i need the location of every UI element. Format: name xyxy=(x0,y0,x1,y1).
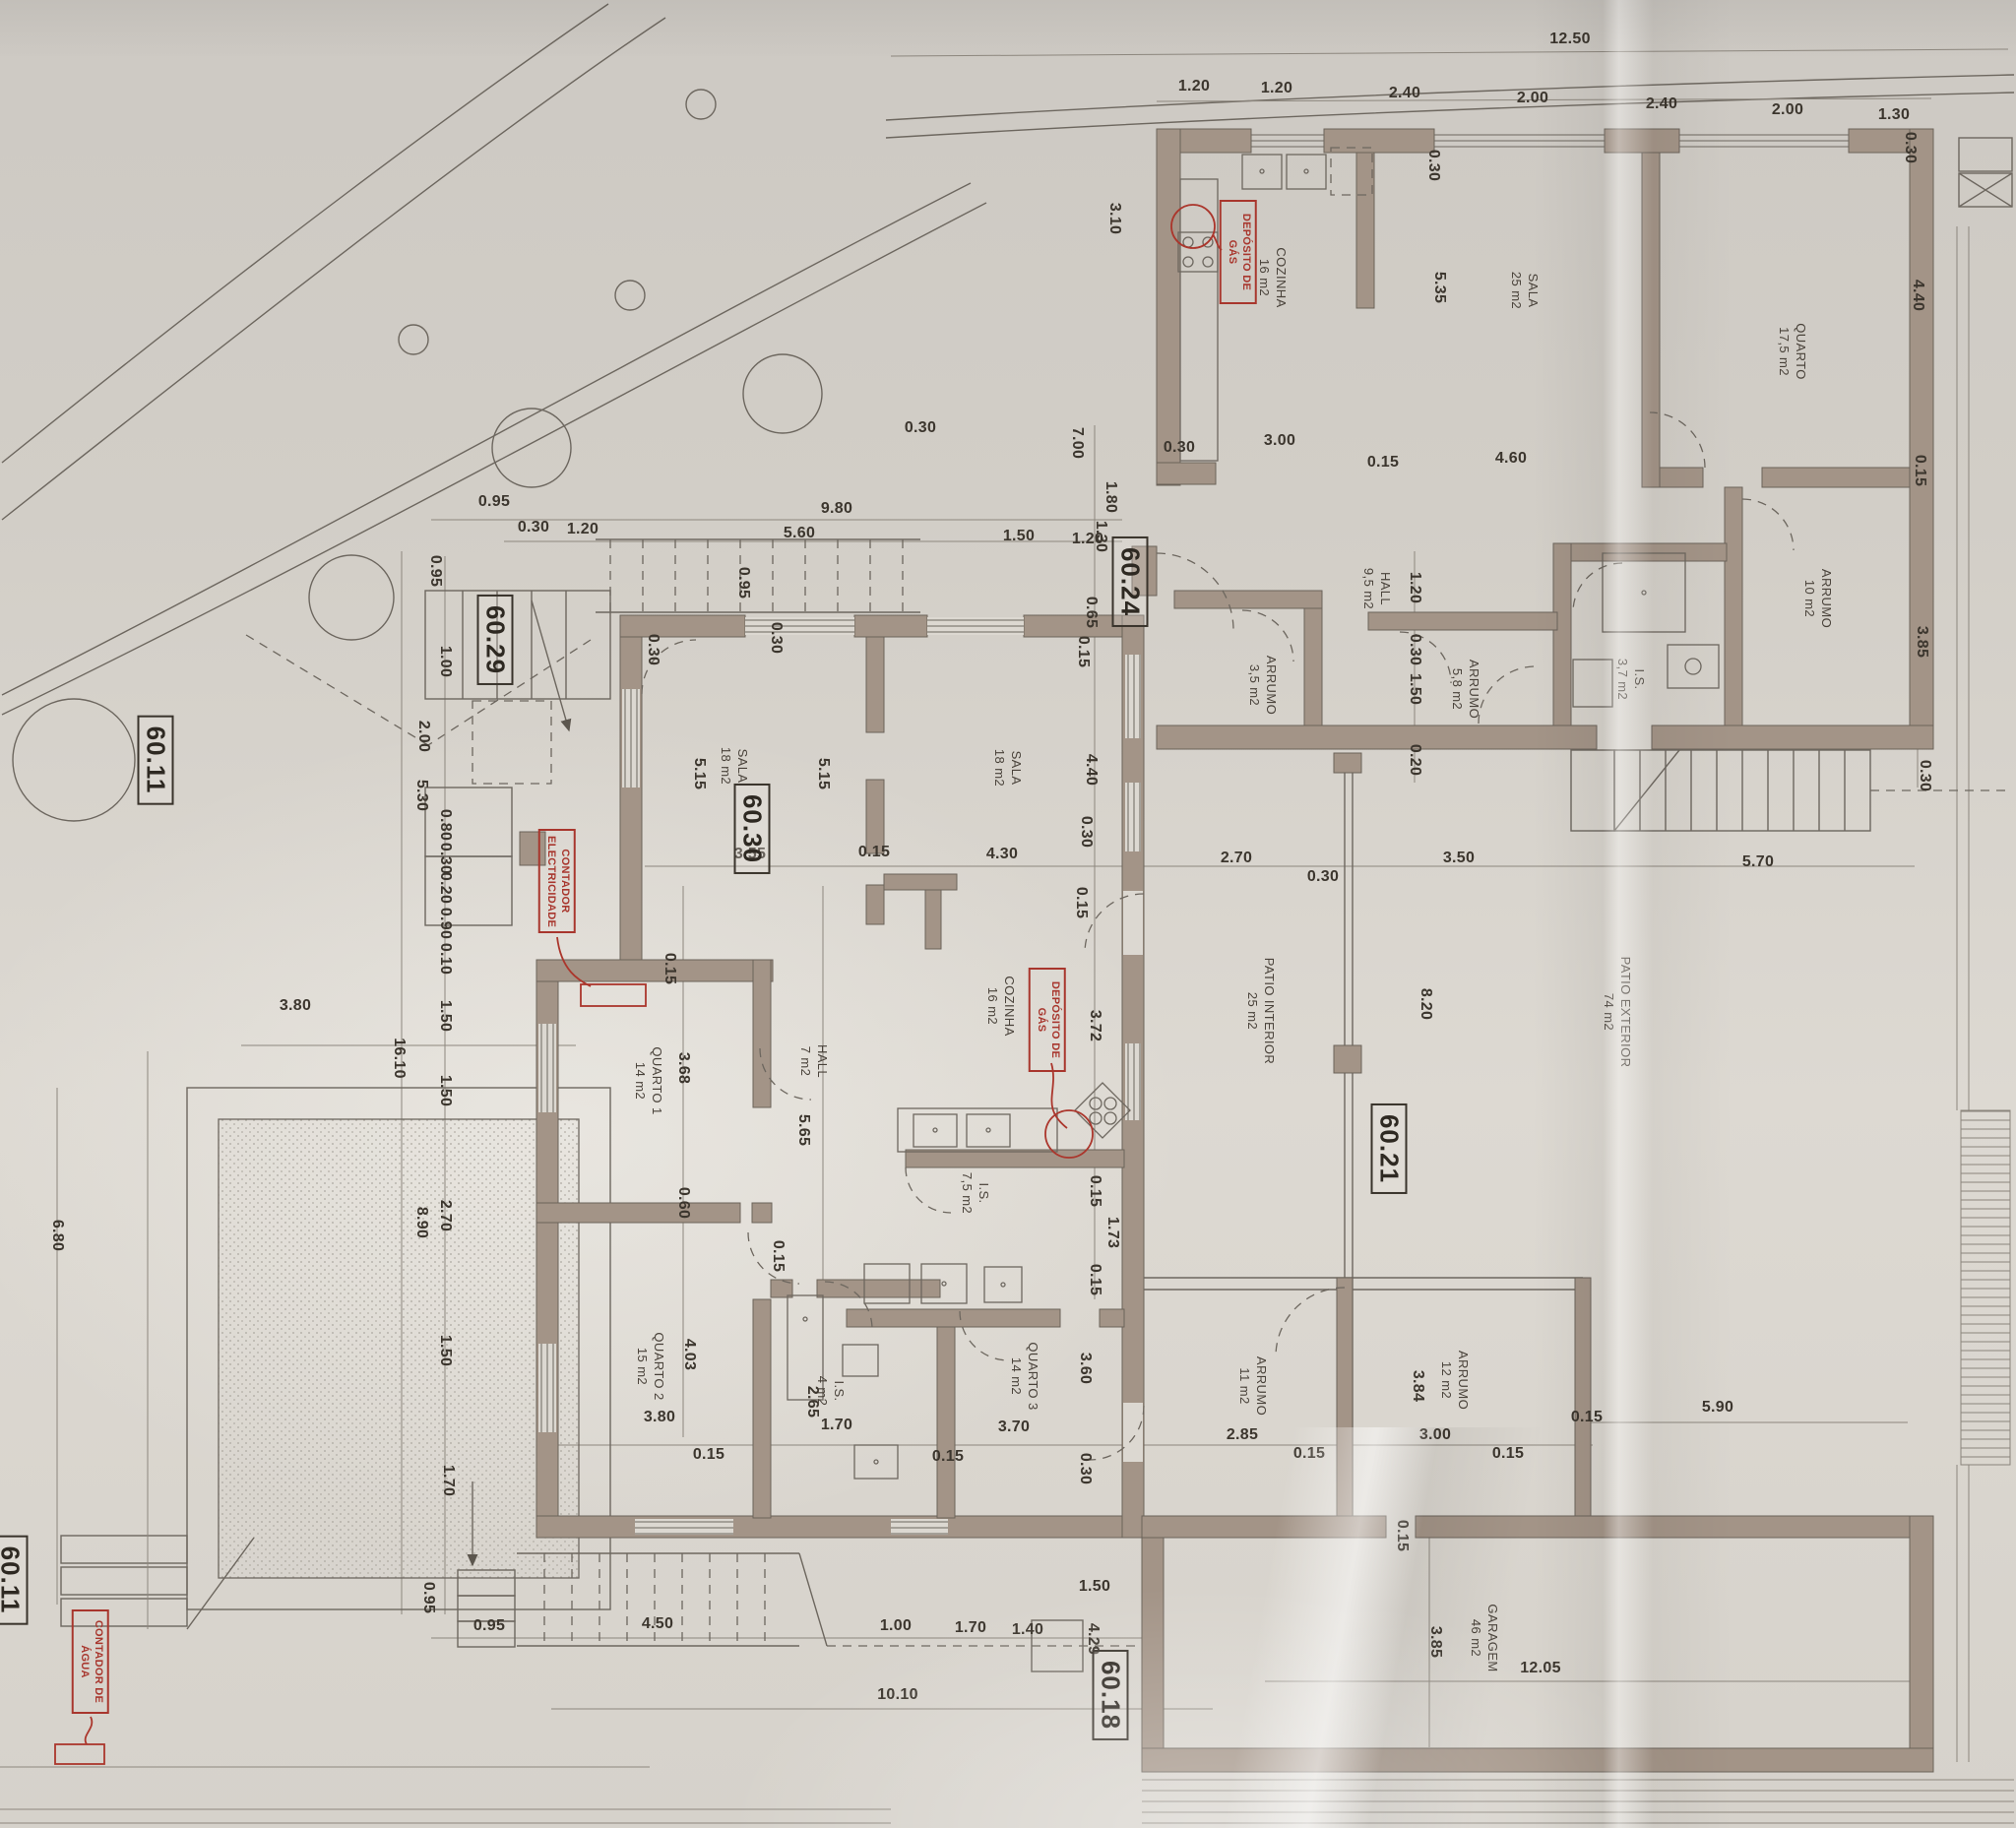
dimension-label: 2.85 xyxy=(1227,1426,1258,1444)
dimension-label: 1.20 xyxy=(567,521,598,538)
dimension-label: 0.30 xyxy=(767,622,785,654)
level-marker: 60.11 xyxy=(0,1536,29,1625)
dimension-label: 8.20 xyxy=(1417,988,1434,1020)
dimension-label: 0.30 xyxy=(1076,1453,1094,1484)
dimension-label: 5.65 xyxy=(794,1114,812,1146)
room-label: ARRUMO11 m2 xyxy=(1235,1356,1269,1416)
dimension-label: 1.20 xyxy=(1178,78,1210,95)
dimension-label: 1.00 xyxy=(436,646,454,677)
red-annotation: CONTADOR DE ÁGUA xyxy=(72,1609,109,1714)
room-label: COZINHA16 m2 xyxy=(983,976,1017,1036)
level-marker: 60.18 xyxy=(1093,1650,1129,1740)
red-annotation: DEPÓSITO DE GÁS xyxy=(1029,968,1066,1072)
dimension-label: 0.65 xyxy=(1082,597,1100,628)
dimension-label: 0.20 xyxy=(1406,744,1423,776)
dimension-label: 2.00 xyxy=(1517,90,1548,107)
dimension-label: 3.60 xyxy=(1076,1353,1094,1384)
room-label: GARAGEM46 m2 xyxy=(1467,1604,1500,1671)
room-label: I.S.4 m2 xyxy=(813,1376,847,1407)
dimension-label: 1.50 xyxy=(1079,1578,1110,1596)
dimension-label: 3.80 xyxy=(280,997,311,1015)
dimension-label: 0.15 xyxy=(932,1448,964,1466)
dimension-label: 0.30 xyxy=(1307,868,1339,886)
level-marker: 60.29 xyxy=(477,595,514,685)
dimension-label: 16.10 xyxy=(390,1038,408,1079)
dimension-label: 0.15 xyxy=(769,1240,787,1272)
dimension-label: 0.15 xyxy=(693,1446,724,1464)
dimension-label: 1.50 xyxy=(1406,673,1423,705)
dimension-label: 2.70 xyxy=(436,1200,454,1231)
dimension-label: 0.95 xyxy=(426,555,444,587)
dimension-label: 0.30 xyxy=(644,634,661,665)
dimension-label: 2.40 xyxy=(1389,85,1420,102)
dimension-label: 0.15 xyxy=(1293,1445,1325,1463)
dimension-label: 4.50 xyxy=(642,1615,673,1633)
dimension-label: 1.50 xyxy=(436,1075,454,1106)
room-label: QUARTO 114 m2 xyxy=(631,1046,664,1114)
dimension-label: 0.95 xyxy=(734,567,752,599)
level-marker: 60.11 xyxy=(138,716,174,805)
room-label: ARRUMO10 m2 xyxy=(1800,569,1834,628)
dimension-label: 3.80 xyxy=(644,1409,675,1426)
dimension-label: 1.20 xyxy=(1261,80,1292,97)
room-label: ARRUMO5,8 m2 xyxy=(1448,660,1481,719)
dimension-label: 4.60 xyxy=(1495,450,1527,468)
dimension-label: 1.80 xyxy=(1102,481,1119,513)
dimension-label: 5.90 xyxy=(1702,1399,1733,1417)
dimension-label: 0.60 xyxy=(674,1187,692,1219)
dimension-label: 1.50 xyxy=(436,1000,454,1032)
room-label: I.S.7,5 m2 xyxy=(958,1172,991,1214)
dimension-label: 0.95 xyxy=(478,493,510,511)
dimension-label: 2.40 xyxy=(1646,95,1677,113)
dimension-label: 3.85 xyxy=(1913,626,1930,658)
dimension-label: 12.05 xyxy=(1520,1660,1561,1677)
dimension-label: 0.15 xyxy=(661,953,678,984)
dimension-label: 0.15 xyxy=(1492,1445,1524,1463)
dimension-label: 0.15 xyxy=(1911,455,1928,486)
dimension-label: 1.70 xyxy=(821,1417,852,1434)
dimension-label: 0.30 xyxy=(518,519,549,536)
dimension-label: 1.00 xyxy=(880,1617,912,1635)
dimension-label: 3.00 xyxy=(1264,432,1295,450)
dimension-label: 3.00 xyxy=(1419,1426,1451,1444)
dimension-label: 4.30 xyxy=(986,846,1018,863)
dimension-label: 5.60 xyxy=(784,525,815,542)
dimension-label: 0.30 xyxy=(1164,439,1195,457)
dimension-label: 1.50 xyxy=(1003,528,1035,545)
room-label: SALA18 m2 xyxy=(717,747,750,785)
dimension-label: 3.10 xyxy=(1105,203,1123,234)
room-label: SALA18 m2 xyxy=(990,749,1024,787)
room-label: QUARTO 314 m2 xyxy=(1007,1342,1040,1410)
dimension-label: 3.85 xyxy=(1426,1626,1444,1658)
level-marker: 60.30 xyxy=(734,784,771,874)
dimension-label: 1.70 xyxy=(955,1619,986,1637)
dimension-label: 0.30 xyxy=(1077,816,1095,848)
dimension-label: 0.95 xyxy=(419,1582,437,1613)
dimension-label: 4.40 xyxy=(1909,280,1926,311)
dimension-label: 5.15 xyxy=(690,758,708,789)
dimension-label: 2.00 xyxy=(414,721,432,752)
dimension-label: 4.40 xyxy=(1082,754,1100,786)
dimension-label: 1.70 xyxy=(439,1465,457,1496)
red-annotation: DEPÓSITO DE GÁS xyxy=(1220,200,1257,304)
dimension-label: 0.15 xyxy=(1074,636,1092,667)
dimension-label: 1.20 xyxy=(1406,572,1423,603)
dimension-label: 0.15 xyxy=(1086,1175,1103,1207)
dimension-label: 3.68 xyxy=(674,1052,692,1084)
dimension-label: 0.30 xyxy=(436,843,454,874)
room-label: SALA25 m2 xyxy=(1507,272,1541,309)
room-label: ARRUMO3,5 m2 xyxy=(1245,656,1279,715)
dimension-label: 0.90 xyxy=(436,908,454,939)
dimension-label: 0.95 xyxy=(473,1617,505,1635)
dimension-label: 0.30 xyxy=(1406,634,1423,665)
dimension-label: 3.50 xyxy=(1443,850,1475,867)
red-annotation: CONTADOR ELECTRICIDADE xyxy=(538,829,576,933)
dimension-label: 2.70 xyxy=(1221,850,1252,867)
dimension-label: 5.30 xyxy=(412,780,430,811)
dimension-label: 3.84 xyxy=(1409,1370,1426,1402)
dimension-label: 1.30 xyxy=(1092,521,1109,552)
dimension-label: 0.15 xyxy=(1086,1264,1103,1295)
dimension-label: 10.10 xyxy=(877,1686,918,1704)
dimension-label: 0.30 xyxy=(1901,132,1919,163)
dimension-label: 0.15 xyxy=(1571,1409,1603,1426)
labels-layer: 12.501.201.202.402.002.402.001.300.300.9… xyxy=(0,0,2016,1828)
dimension-label: 3.72 xyxy=(1086,1010,1103,1041)
dimension-label: 0.15 xyxy=(1072,887,1090,918)
dimension-label: 4.03 xyxy=(680,1339,698,1370)
dimension-label: 1.73 xyxy=(1103,1217,1121,1248)
room-label: QUARTO 215 m2 xyxy=(633,1332,666,1400)
room-label: HALL9,5 m2 xyxy=(1359,568,1393,609)
dimension-label: 5.70 xyxy=(1742,853,1774,871)
dimension-label: 1.30 xyxy=(1878,106,1910,124)
dimension-label: 5.35 xyxy=(1430,272,1448,303)
dimension-label: 5.15 xyxy=(814,758,832,789)
level-marker: 60.21 xyxy=(1371,1103,1408,1194)
dimension-label: 3.70 xyxy=(998,1418,1030,1436)
dimension-label: 1.40 xyxy=(1012,1621,1043,1639)
dimension-label: 0.30 xyxy=(1916,760,1933,791)
room-label: PATIO INTERIOR25 m2 xyxy=(1243,958,1277,1064)
level-marker: 60.24 xyxy=(1112,536,1149,627)
dimension-label: 0.15 xyxy=(858,844,890,861)
dimension-label: 12.50 xyxy=(1549,31,1591,48)
dimension-label: 9.80 xyxy=(821,500,852,518)
dimension-label: 2.00 xyxy=(1772,101,1803,119)
room-label: ARRUMO12 m2 xyxy=(1437,1351,1471,1410)
dimension-label: 1.50 xyxy=(436,1335,454,1366)
dimension-label: 0.30 xyxy=(1424,150,1442,181)
dimension-label: 6.80 xyxy=(48,1220,66,1251)
dimension-label: 8.90 xyxy=(412,1207,430,1238)
room-label: QUARTO17,5 m2 xyxy=(1775,323,1808,380)
dimension-label: 0.15 xyxy=(1393,1520,1411,1551)
room-label: HALL7 m2 xyxy=(796,1044,830,1078)
floor-plan-photo: 12.501.201.202.402.002.402.001.300.300.9… xyxy=(0,0,2016,1828)
dimension-label: 7.00 xyxy=(1068,427,1086,459)
dimension-label: 0.10 xyxy=(436,943,454,975)
room-label: COZINHA16 m2 xyxy=(1255,247,1289,307)
dimension-label: 0.15 xyxy=(1367,454,1399,472)
dimension-label: 0.30 xyxy=(905,419,936,437)
dimension-label: 0.80 xyxy=(436,809,454,841)
dimension-label: 0.20 xyxy=(436,872,454,904)
room-label: PATIO EXTERIOR74 m2 xyxy=(1600,957,1633,1068)
room-label: I.S.3,7 m2 xyxy=(1613,659,1647,700)
